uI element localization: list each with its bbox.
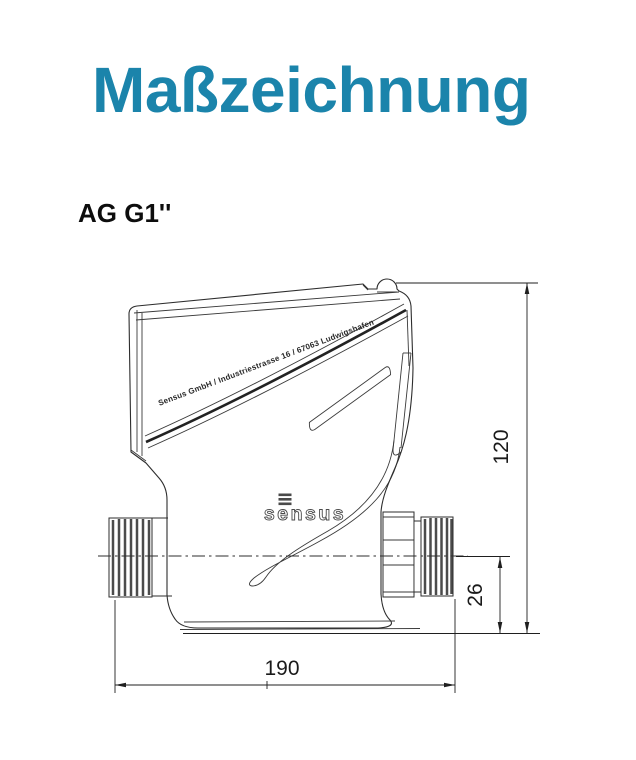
dim-length-value: 190 bbox=[264, 657, 299, 680]
page: Maßzeichnung AG G1'' bbox=[0, 0, 636, 760]
dimension-drawing: Sensus GmbH / Industriestrasse 16 / 6706… bbox=[0, 0, 636, 760]
brand-logo-text: sensus bbox=[264, 503, 346, 525]
thread-left bbox=[109, 518, 172, 597]
brand-logo-bars bbox=[279, 494, 292, 506]
dimension-lines bbox=[115, 283, 540, 693]
device-address-text: Sensus GmbH / Industriestrasse 16 / 6706… bbox=[157, 318, 375, 408]
device-outline bbox=[129, 279, 413, 628]
thread-right bbox=[383, 512, 453, 597]
dim-port-value: 26 bbox=[464, 583, 487, 606]
device-interior bbox=[131, 285, 420, 630]
dim-height-value: 120 bbox=[490, 429, 513, 464]
brand-logo: sensus bbox=[264, 494, 346, 526]
